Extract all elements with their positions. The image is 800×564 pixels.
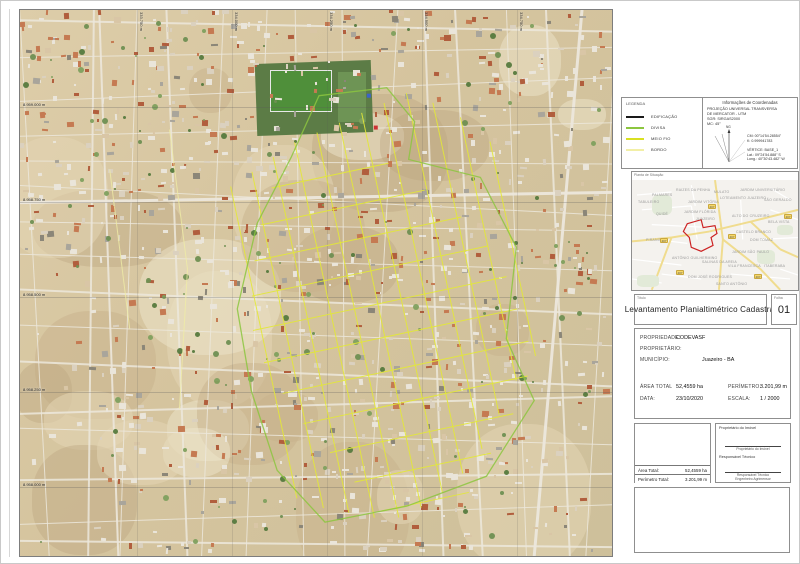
- north-arrow-label: NG: [726, 125, 731, 129]
- inset-label: DOM TOMAZ: [750, 238, 773, 242]
- owner-signature-caption: Proprietário do Imóvel: [716, 447, 790, 451]
- perimetro-total-row: Perímetro Total: 3.201,99 m: [635, 474, 710, 483]
- inset-label: DOM JOSÉ RODRIGUES: [688, 275, 732, 279]
- inset-label: QUIDÉ: [656, 212, 668, 216]
- blue-marker: [367, 94, 371, 98]
- legend-item: BORDO: [626, 144, 698, 155]
- area-total-value: 52,4559 ha: [685, 468, 707, 473]
- inset-label: JARDIM UNIVERSITÁRIO: [740, 188, 785, 192]
- sheet-number-box: Folha 01: [771, 294, 797, 325]
- inset-label: RAIZES DA PENHA: [676, 188, 710, 192]
- legend-item-label: DIVISA: [651, 125, 665, 130]
- perimetro-value: 3.201,99 m: [760, 384, 787, 390]
- tech-signature-label: Responsável Técnico: [719, 455, 755, 459]
- highway-shield: 407: [660, 238, 668, 243]
- inset-label: TABULEIRO: [638, 200, 659, 204]
- inset-road-map: PALMARESRAIZES DA PENHAMULATOJARDIM UNIV…: [632, 180, 798, 290]
- edificacao-line-swatch: [626, 116, 644, 118]
- vertex-annotation: VÉRTICE: BASE_1 Lat.: 09°24'54.888" S Lo…: [747, 148, 785, 162]
- perimetro-total-value: 3.201,99 m: [685, 477, 707, 482]
- inset-title: Planta de Situação: [634, 173, 663, 177]
- sheet-margin-line: [9, 9, 10, 557]
- propriedade-row: PROPRIEDADE: CODEVASF: [640, 335, 680, 341]
- tech-signature-caption2: Engenheiro Agrimensor: [716, 477, 790, 481]
- map-frame: 8.959.000 m8.958.750 m8.958.500 m8.958.2…: [19, 9, 613, 557]
- municipio-value: Juazeiro - BA: [702, 357, 734, 363]
- title-block: Título Levantamento Planialtimétrico Cad…: [634, 294, 767, 325]
- inset-label: SANTO ANTÔNIO: [716, 282, 747, 286]
- inset-label: LOTEAMENTO JUAZEIRO: [720, 196, 766, 200]
- highway-shield: 407: [708, 204, 716, 209]
- legend-item-label: EDIFICAÇÃO: [651, 114, 677, 119]
- perimetro-label: PERÍMETRO:: [728, 384, 761, 390]
- north-convergence-diagram: [709, 124, 749, 166]
- signatures-box: Proprietário do Imóvel Proprietário do I…: [715, 423, 791, 483]
- survey-overlay: [20, 10, 612, 556]
- legend-item: MEIO FIO: [626, 133, 698, 144]
- vertex-long: Long.: 40°30'43.482" W: [747, 157, 785, 162]
- aerial-map: 8.959.000 m8.958.750 m8.958.500 m8.958.2…: [20, 10, 612, 556]
- inset-label: MULATO: [714, 190, 729, 194]
- inset-park: [777, 225, 793, 235]
- escala-value: 1 / 2000: [760, 396, 779, 402]
- propriedade-label: PROPRIEDADE:: [640, 335, 680, 341]
- owner-signature-label: Proprietário do Imóvel: [719, 426, 756, 430]
- cm-value: CM: 00°14'54.28554": [747, 134, 781, 139]
- bordo-line-swatch: [626, 149, 644, 151]
- legend-item-label: MEIO FIO: [651, 136, 671, 141]
- inset-label: BELA VISTA: [768, 220, 790, 224]
- legend-item: EDIFICAÇÃO: [626, 111, 698, 122]
- notes-box: [634, 487, 790, 553]
- divisa-line-swatch: [626, 127, 644, 129]
- k-value: K: 0.999941783: [747, 139, 781, 144]
- legend-box: LEGENDA EDIFICAÇÃO DIVISA MEIO FIO BORDO: [621, 97, 703, 169]
- areas-summary-box: Área Total: 52,4559 ha Perímetro Total: …: [634, 423, 711, 483]
- inset-label: JARDIM SÃO PAULO: [732, 250, 769, 254]
- inset-label: PALMARES: [652, 193, 672, 197]
- coordinates-box: Informações de Coordenadas PROJEÇÃO UNIV…: [702, 97, 798, 169]
- legend-title: LEGENDA: [626, 101, 698, 106]
- municipio-label: MUNICÍPIO:: [640, 357, 670, 363]
- drawing-sheet: 8.959.000 m8.958.750 m8.958.500 m8.958.2…: [0, 0, 800, 564]
- property-info-box: PROPRIEDADE: CODEVASF PROPRIETÁRIO: MUNI…: [634, 328, 791, 419]
- highway-shield: 407: [754, 274, 762, 279]
- propriedade-value: CODEVASF: [676, 335, 705, 341]
- red-marker: [374, 126, 378, 130]
- proprietario-label: PROPRIETÁRIO:: [640, 346, 682, 352]
- drawing-title: Levantamento Planialtimétrico Cadastral: [635, 295, 766, 324]
- inset-label: JARDIM FLÓRIDA: [684, 210, 716, 214]
- inset-label: ITABERABA: [764, 264, 785, 268]
- sheet-number: 01: [772, 295, 796, 324]
- legend-item: DIVISA: [626, 122, 698, 133]
- convergence-annotation: CM: 00°14'54.28554" K: 0.999941783: [747, 134, 781, 143]
- area-perimetro-row: ÁREA TOTAL 52,4559 ha PERÍMETRO: 3.201,9…: [640, 384, 786, 390]
- area-total-row: Área Total: 52,4559 ha: [635, 465, 710, 474]
- area-total-label: Área Total:: [638, 468, 659, 473]
- data-label: DATA:: [640, 396, 655, 402]
- legend-item-label: BORDO: [651, 147, 667, 152]
- highway-shield: 407: [676, 270, 684, 275]
- location-inset-box: Planta de Situação PALMARESRAIZES DA PEN…: [631, 171, 799, 291]
- inset-label: JUAZEIRO: [696, 217, 715, 221]
- area-label: ÁREA TOTAL: [640, 384, 672, 390]
- data-value: 23/10/2020: [676, 396, 703, 402]
- inset-label: ALTO DO CRUZEIRO: [732, 214, 770, 218]
- data-escala-row: DATA: 23/10/2020 ESCALA: 1 / 2000: [640, 396, 786, 402]
- highway-shield: 407: [728, 234, 736, 239]
- highway-shield: 407: [784, 214, 792, 219]
- perimetro-total-label: Perímetro Total:: [638, 477, 669, 482]
- proprietario-row: PROPRIETÁRIO:: [640, 346, 682, 352]
- inset-label: SÃO GERALDO: [764, 198, 792, 202]
- coordinates-title: Informações de Coordenadas: [703, 100, 797, 105]
- inset-label: VILA FRANCESCA: [728, 264, 761, 268]
- inset-label: CASTELO BRANCO: [736, 230, 771, 234]
- inset-park: [637, 275, 659, 287]
- escala-label: ESCALA:: [728, 396, 751, 402]
- municipio-row: MUNICÍPIO: Juazeiro - BA: [640, 357, 670, 363]
- meio-fio-line-swatch: [626, 138, 644, 140]
- area-value: 52,4559 ha: [676, 384, 703, 390]
